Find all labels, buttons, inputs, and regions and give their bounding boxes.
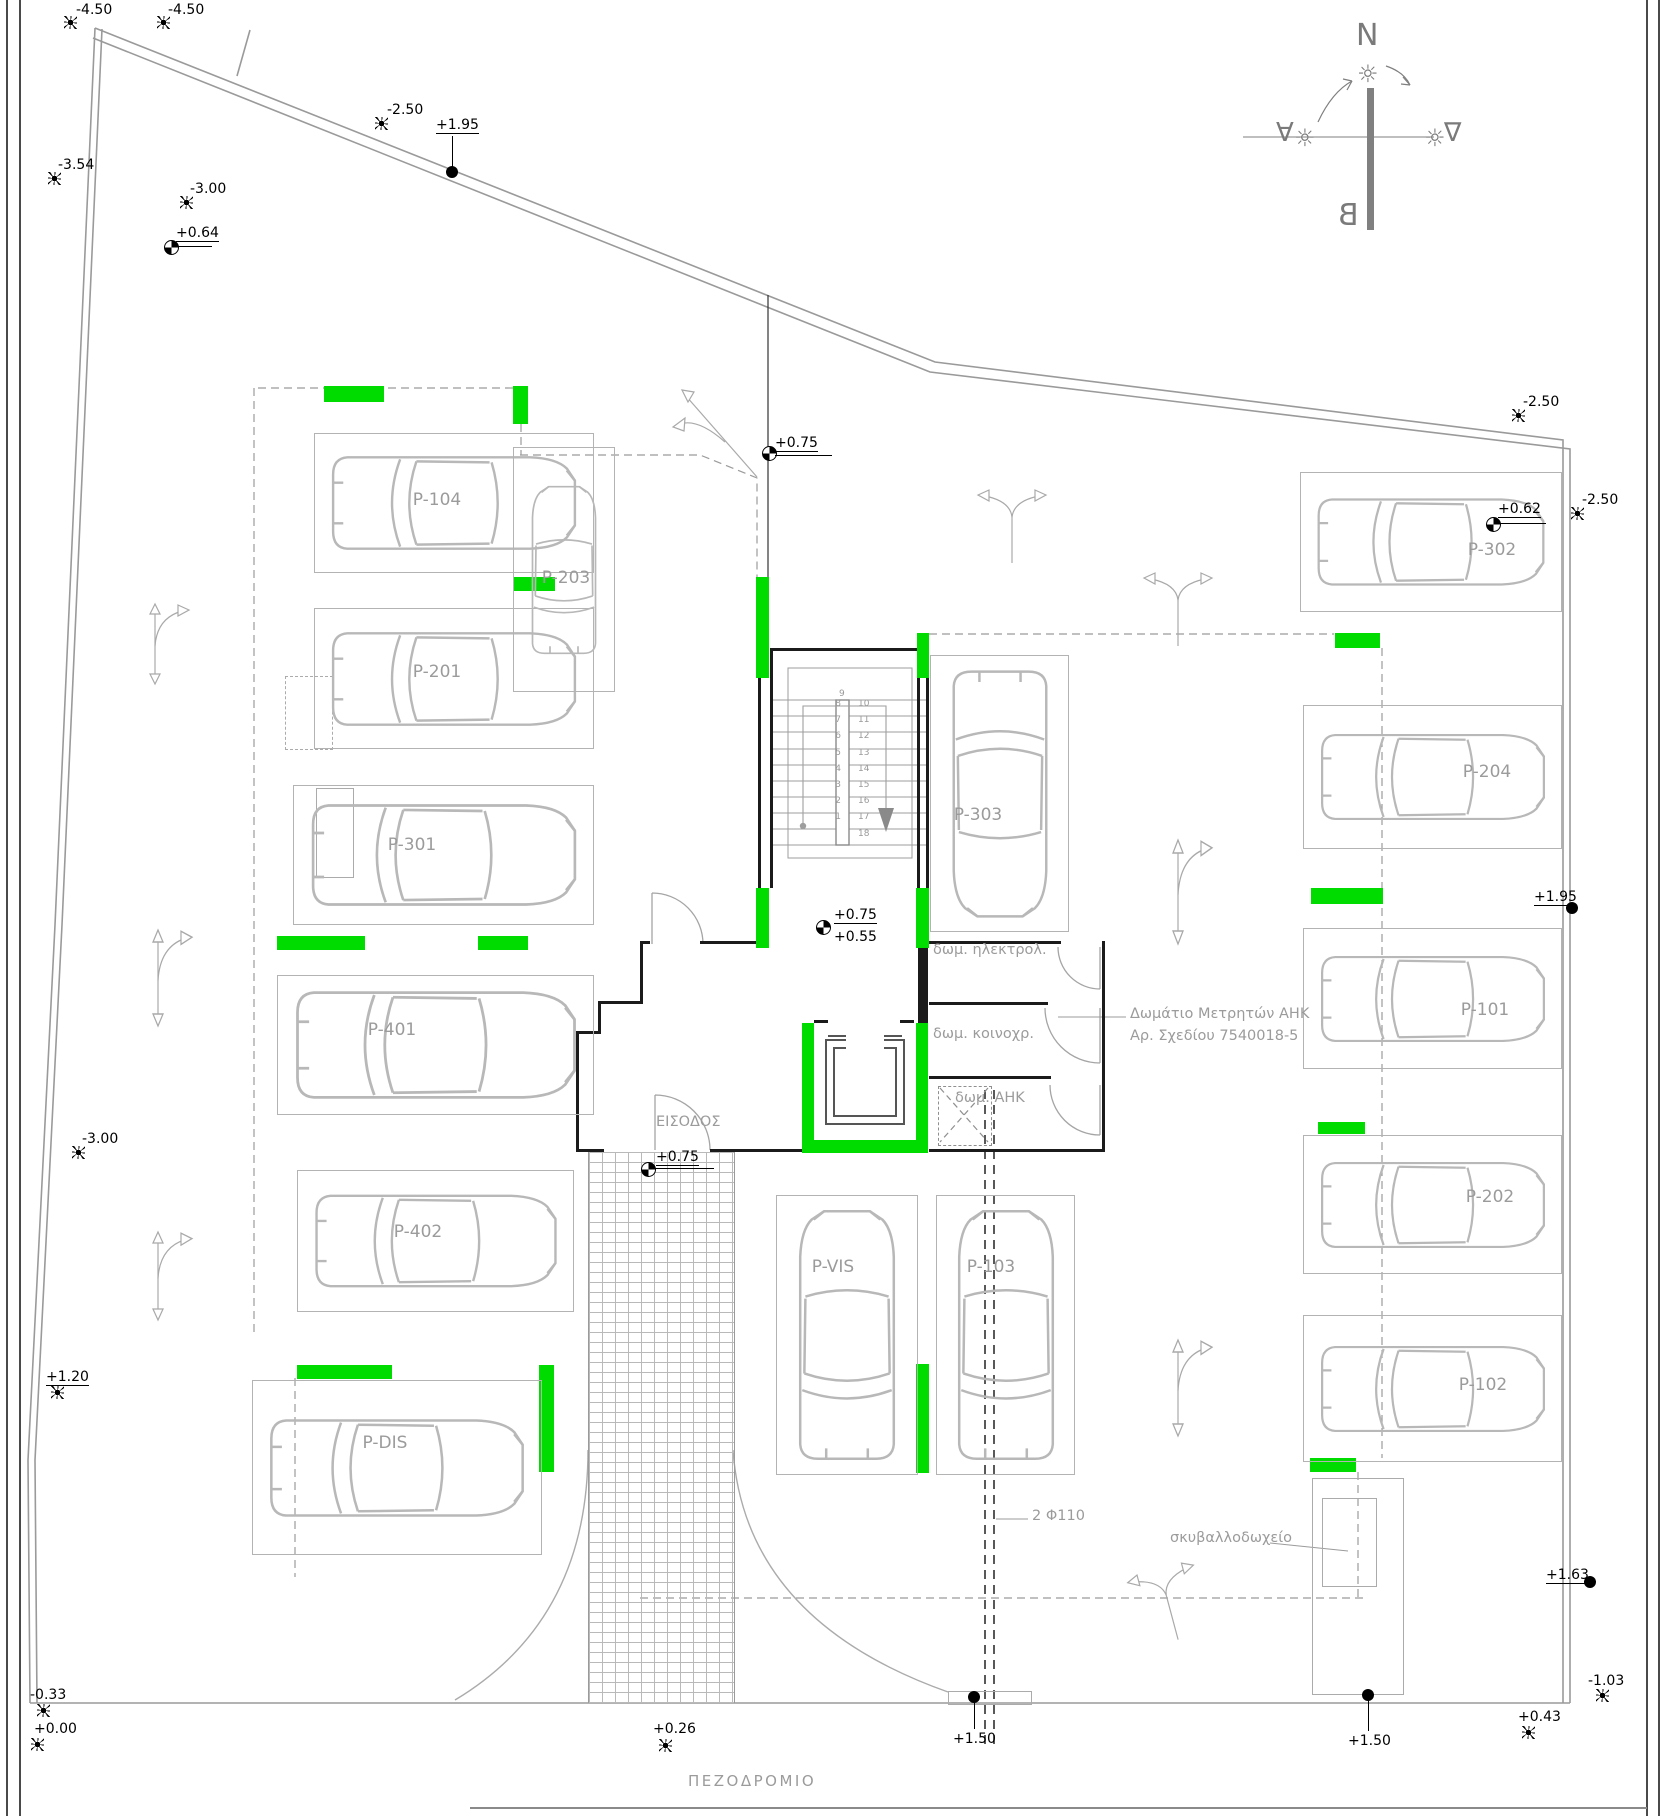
parking-spot-P-101 (1303, 928, 1562, 1069)
elevation-leader (1368, 1698, 1369, 1731)
garbage-bin-box (1322, 1498, 1377, 1587)
elevation-label: -4.50 (76, 3, 112, 17)
parking-spot-P-VIS (776, 1195, 918, 1475)
parking-spot-label: P-303 (954, 805, 1002, 825)
elevation-label: +1.95 (436, 118, 479, 134)
elevation-marker-star (72, 1146, 85, 1159)
elevator-car (826, 1036, 904, 1124)
elevation-leader (452, 136, 453, 167)
stair-step-number: 17 (858, 813, 869, 822)
elevation-label: -3.54 (58, 158, 94, 172)
green-marker (478, 936, 528, 950)
car-icon (265, 1415, 529, 1521)
label--: ΕΙΣΟΔΟΣ (656, 1114, 721, 1130)
elevation-label: -2.50 (1582, 493, 1618, 507)
stair-step-number: 6 (835, 732, 841, 741)
parking-spot-P-103 (936, 1195, 1075, 1475)
elevation-label: -2.50 (1523, 395, 1559, 409)
elevation-marker-dot (446, 166, 458, 178)
elevation-label: +0.75 (656, 1150, 699, 1166)
stair-step-number: 1 (835, 813, 841, 822)
green-marker (756, 577, 769, 678)
lobby-wall (640, 941, 643, 1004)
green-marker (513, 386, 528, 424)
parking-spot-label: P-201 (413, 662, 461, 682)
label--: σκυβαλλοδωχείο (1170, 1530, 1292, 1546)
elevation-label: -1.03 (1588, 1674, 1624, 1688)
lobby-wall (598, 1001, 601, 1034)
stair-step-number: 9 (839, 690, 845, 699)
gate-threshold (948, 1691, 1032, 1705)
car-icon (792, 1205, 902, 1465)
parking-spot-label: P-101 (1461, 1000, 1509, 1020)
elevation-label: +0.62 (1498, 502, 1541, 518)
parking-spot-label: P-202 (1466, 1187, 1514, 1207)
elevation-label: +0.43 (1518, 1710, 1561, 1724)
green-marker (324, 386, 384, 402)
car-icon (1316, 952, 1549, 1045)
sun-icon: ☼ (1357, 60, 1379, 88)
stair-direction-arrow (878, 808, 894, 832)
elevation-marker-bench (1486, 517, 1501, 532)
elevation-label: +0.26 (653, 1722, 696, 1736)
stair-step-number: 7 (835, 716, 841, 725)
label--: ΠΕΖΟΔΡΟΜΙΟ (688, 1772, 816, 1790)
parking-spot-label: P-203 (542, 568, 590, 588)
car-icon (1316, 1342, 1549, 1435)
parking-spot-P-303 (930, 655, 1069, 932)
stair-step-number: 16 (858, 797, 869, 806)
elevation-marker-star (180, 196, 193, 209)
stair-step-number: 8 (835, 700, 841, 709)
stair-step-number: 18 (858, 830, 869, 839)
elevation-marker-star (1512, 409, 1525, 422)
label--: Δωμάτιο Μετρητών ΑΗΚ (1130, 1006, 1309, 1022)
green-marker (277, 936, 365, 950)
elevation-label: +1.63 (1546, 1568, 1589, 1584)
stair-step-number: 13 (858, 749, 869, 758)
stair-wall (926, 648, 929, 888)
label--: δωμ. ΑΗΚ (955, 1090, 1025, 1106)
entrance-walkway-hatch (588, 1152, 735, 1703)
stair-step-number: 5 (835, 749, 841, 758)
elevation-leader (974, 1700, 975, 1729)
stair-wall (770, 648, 929, 651)
compass-west-label: ∀ (1276, 118, 1294, 148)
parking-spot-P-202 (1303, 1135, 1562, 1274)
staircase-lines (772, 668, 926, 858)
elevator-jamb (900, 1020, 914, 1023)
lobby-wall (576, 1149, 604, 1152)
elevation-label: +1.50 (953, 1732, 996, 1746)
elevation-label: +0.55 (834, 930, 877, 944)
stair-step-number: 11 (858, 716, 869, 725)
lobby-wall (710, 1149, 805, 1152)
green-marker-elevator (916, 1023, 928, 1152)
stair-step-number: 2 (835, 797, 841, 806)
elevation-leader (654, 1168, 714, 1169)
green-marker (916, 888, 929, 948)
elevation-marker-bench (164, 240, 179, 255)
elevator-jamb (814, 1020, 828, 1023)
stair-step-number: 12 (858, 732, 869, 741)
compass-east-label: ∇ (1444, 118, 1461, 148)
elevation-leader (177, 246, 212, 247)
label--7540018-5: Αρ. Σχεδίου 7540018-5 (1130, 1028, 1298, 1044)
elevation-label: -3.00 (190, 182, 226, 196)
corridor-wall (917, 678, 920, 890)
meter-room-wall (1102, 941, 1105, 1152)
car-icon (1316, 730, 1549, 823)
sun-icon: ☼ (1424, 124, 1446, 152)
elevation-marker-star (375, 117, 388, 130)
label--: δωμ. ηλεκτρολ. (933, 942, 1047, 958)
elevation-marker-bench (641, 1162, 656, 1177)
parking-spot-label: P-302 (1468, 540, 1516, 560)
stair-step-number: 15 (858, 781, 869, 790)
elevation-marker-star (31, 1738, 44, 1751)
elevation-label: +1.20 (46, 1370, 89, 1386)
parking-spot-label: P-402 (394, 1222, 442, 1242)
car-icon (290, 987, 581, 1103)
parking-spot-P-204 (1303, 705, 1562, 849)
stair-step-number: 10 (858, 700, 869, 709)
elevation-label: +0.00 (34, 1722, 77, 1736)
elevation-leader (1494, 523, 1546, 524)
parking-spot-label: P-204 (1463, 762, 1511, 782)
parking-spot-P-DIS (252, 1380, 542, 1555)
stair-wall (770, 648, 773, 888)
green-marker (756, 888, 769, 948)
elevation-marker-star (1522, 1726, 1535, 1739)
elevation-marker-star (37, 1704, 50, 1717)
meter-room-wall (929, 1002, 1048, 1005)
parking-spot-label: P-301 (388, 835, 436, 855)
meter-room-wall (929, 1149, 1105, 1152)
car-icon (306, 800, 581, 910)
elevation-label: -4.50 (168, 3, 204, 17)
green-marker-elevator (802, 1140, 928, 1153)
parking-spot-label: P-VIS (812, 1257, 854, 1277)
parking-spot-P-102 (1303, 1315, 1562, 1462)
elevation-label: +0.75 (775, 436, 818, 452)
green-marker (1318, 1122, 1365, 1134)
parking-spot-label: P-DIS (363, 1433, 408, 1453)
corridor-wall (758, 678, 761, 890)
elevation-leader (775, 455, 832, 456)
elevation-label: +1.50 (1348, 1734, 1391, 1748)
car-icon (952, 1205, 1059, 1465)
elevation-label: -0.33 (30, 1688, 66, 1702)
label--: δωμ. κοινοχρ. (933, 1026, 1034, 1042)
site-plan-drawing: N ∀ ∇ B ☼ ☼ ☼ P-104P-201P-301P-401P-402P… (0, 0, 1676, 1816)
green-marker (1335, 633, 1380, 648)
green-marker (917, 633, 929, 678)
elevation-marker-star (659, 1739, 672, 1752)
stair-step-number: 4 (835, 765, 841, 774)
elevation-label: +0.64 (176, 226, 219, 242)
parking-spot-label: P-103 (967, 1257, 1015, 1277)
compass-needle-bar (1367, 88, 1374, 230)
lobby-wall (700, 941, 758, 944)
elevation-marker-star (48, 172, 61, 185)
compass-north-label: N (1356, 18, 1378, 53)
meter-room-wall (929, 1076, 1051, 1079)
parking-spot-P-401 (277, 975, 594, 1115)
compass-south-label: B (1338, 198, 1359, 233)
lobby-wall (598, 1001, 643, 1004)
car-icon (946, 665, 1053, 922)
elevation-marker-bench (816, 920, 831, 935)
parking-spot-label: P-104 (413, 490, 461, 510)
parking-spot-P-302 (1300, 472, 1562, 612)
green-marker (1311, 888, 1383, 904)
elevation-marker-star (1596, 1689, 1609, 1702)
elevation-label: -3.00 (82, 1132, 118, 1146)
parking-spot-P-301 (293, 785, 594, 925)
elevation-marker-star (51, 1386, 64, 1399)
compass-lines (1243, 66, 1434, 137)
elevation-label: +0.75 (834, 908, 877, 924)
label-2-110: 2 Φ110 (1032, 1508, 1085, 1524)
green-marker-elevator (802, 1023, 814, 1152)
stair-step-number: 14 (858, 765, 869, 774)
elevation-marker-star (1571, 507, 1584, 520)
shaft-wall (918, 948, 928, 1023)
sun-icon: ☼ (1294, 124, 1316, 152)
elevation-label: -2.50 (387, 103, 423, 117)
stair-step-number: 3 (835, 781, 841, 790)
elevation-label: +1.95 (1534, 890, 1577, 906)
parking-spot-label: P-102 (1459, 1375, 1507, 1395)
parking-spot-label: P-401 (368, 1020, 416, 1040)
green-marker (297, 1365, 392, 1379)
